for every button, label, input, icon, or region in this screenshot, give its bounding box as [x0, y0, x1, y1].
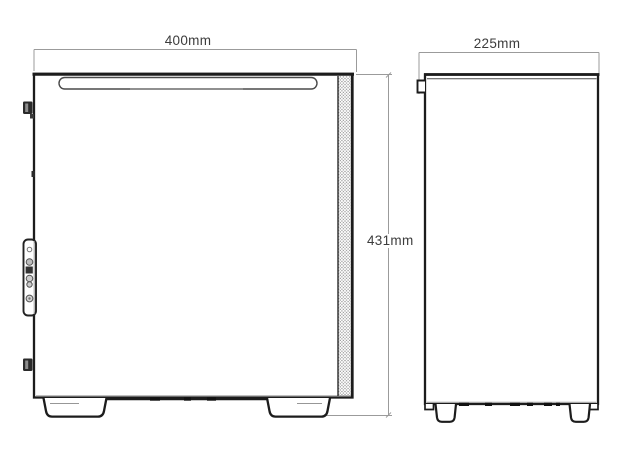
front-bottom-left-step [425, 404, 434, 410]
side-view [23, 74, 354, 417]
front-view [418, 75, 600, 422]
front-feet [436, 404, 591, 422]
edge-latch-tick [32, 171, 36, 177]
dimension-line-side-width [34, 50, 357, 73]
side-view-outline [34, 74, 353, 398]
side-height-dimension-label: 431mm [364, 234, 417, 248]
top-vent-slot [59, 78, 317, 90]
thumbscrew-top-icon [23, 102, 34, 119]
front-width-dimension-label: 225mm [459, 37, 535, 51]
front-mesh-strip [339, 76, 353, 396]
side-feet [44, 398, 331, 417]
front-foot-left [436, 404, 457, 422]
dimension-diagram: 400mm 225mm 431mm [0, 0, 640, 464]
io-bracket [24, 240, 37, 316]
front-view-outline [425, 75, 598, 405]
side-width-dimension-label: 400mm [150, 34, 226, 48]
side-foot-rear [44, 398, 107, 417]
diagram-linework [0, 0, 640, 464]
front-top-left-tab [418, 81, 426, 93]
side-foot-front [267, 398, 330, 417]
front-foot-right [570, 404, 591, 422]
thumbscrew-bottom-icon [23, 359, 33, 372]
